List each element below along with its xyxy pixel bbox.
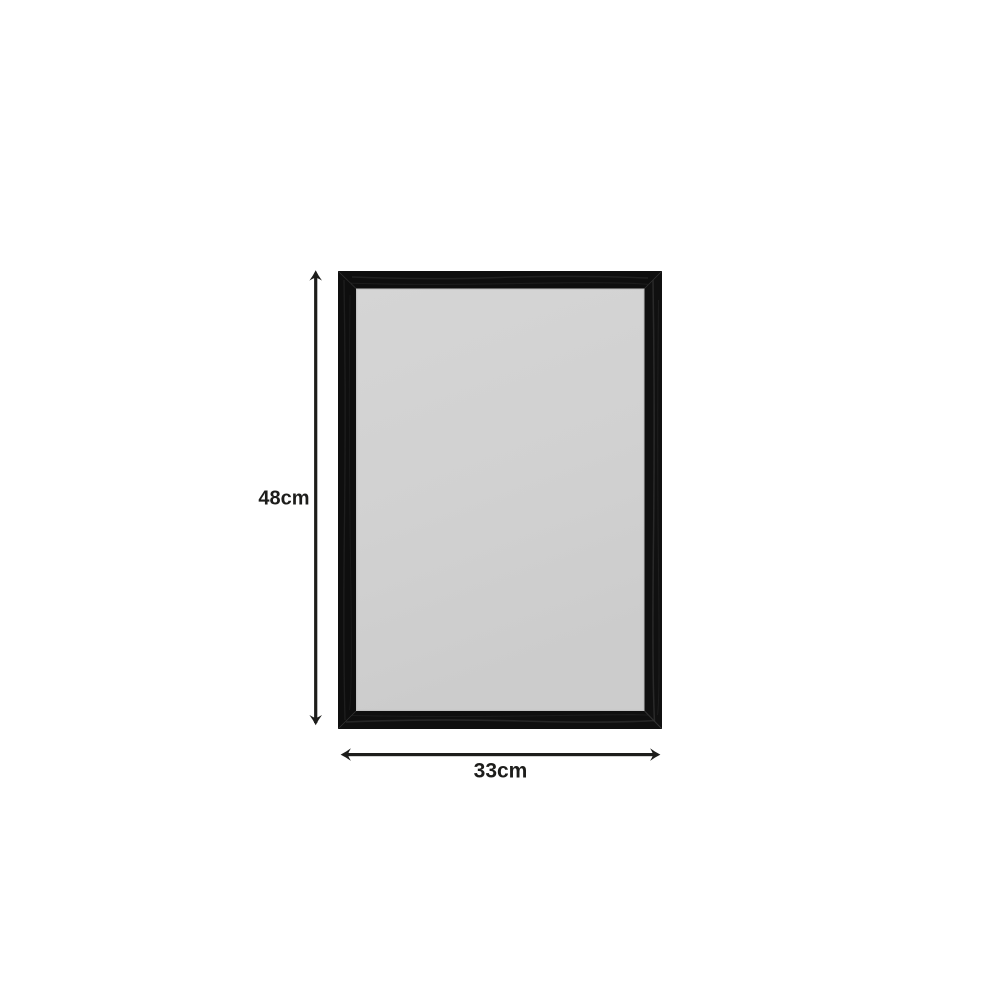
svg-text:33cm: 33cm [474,760,528,783]
svg-text:48cm: 48cm [258,488,309,510]
